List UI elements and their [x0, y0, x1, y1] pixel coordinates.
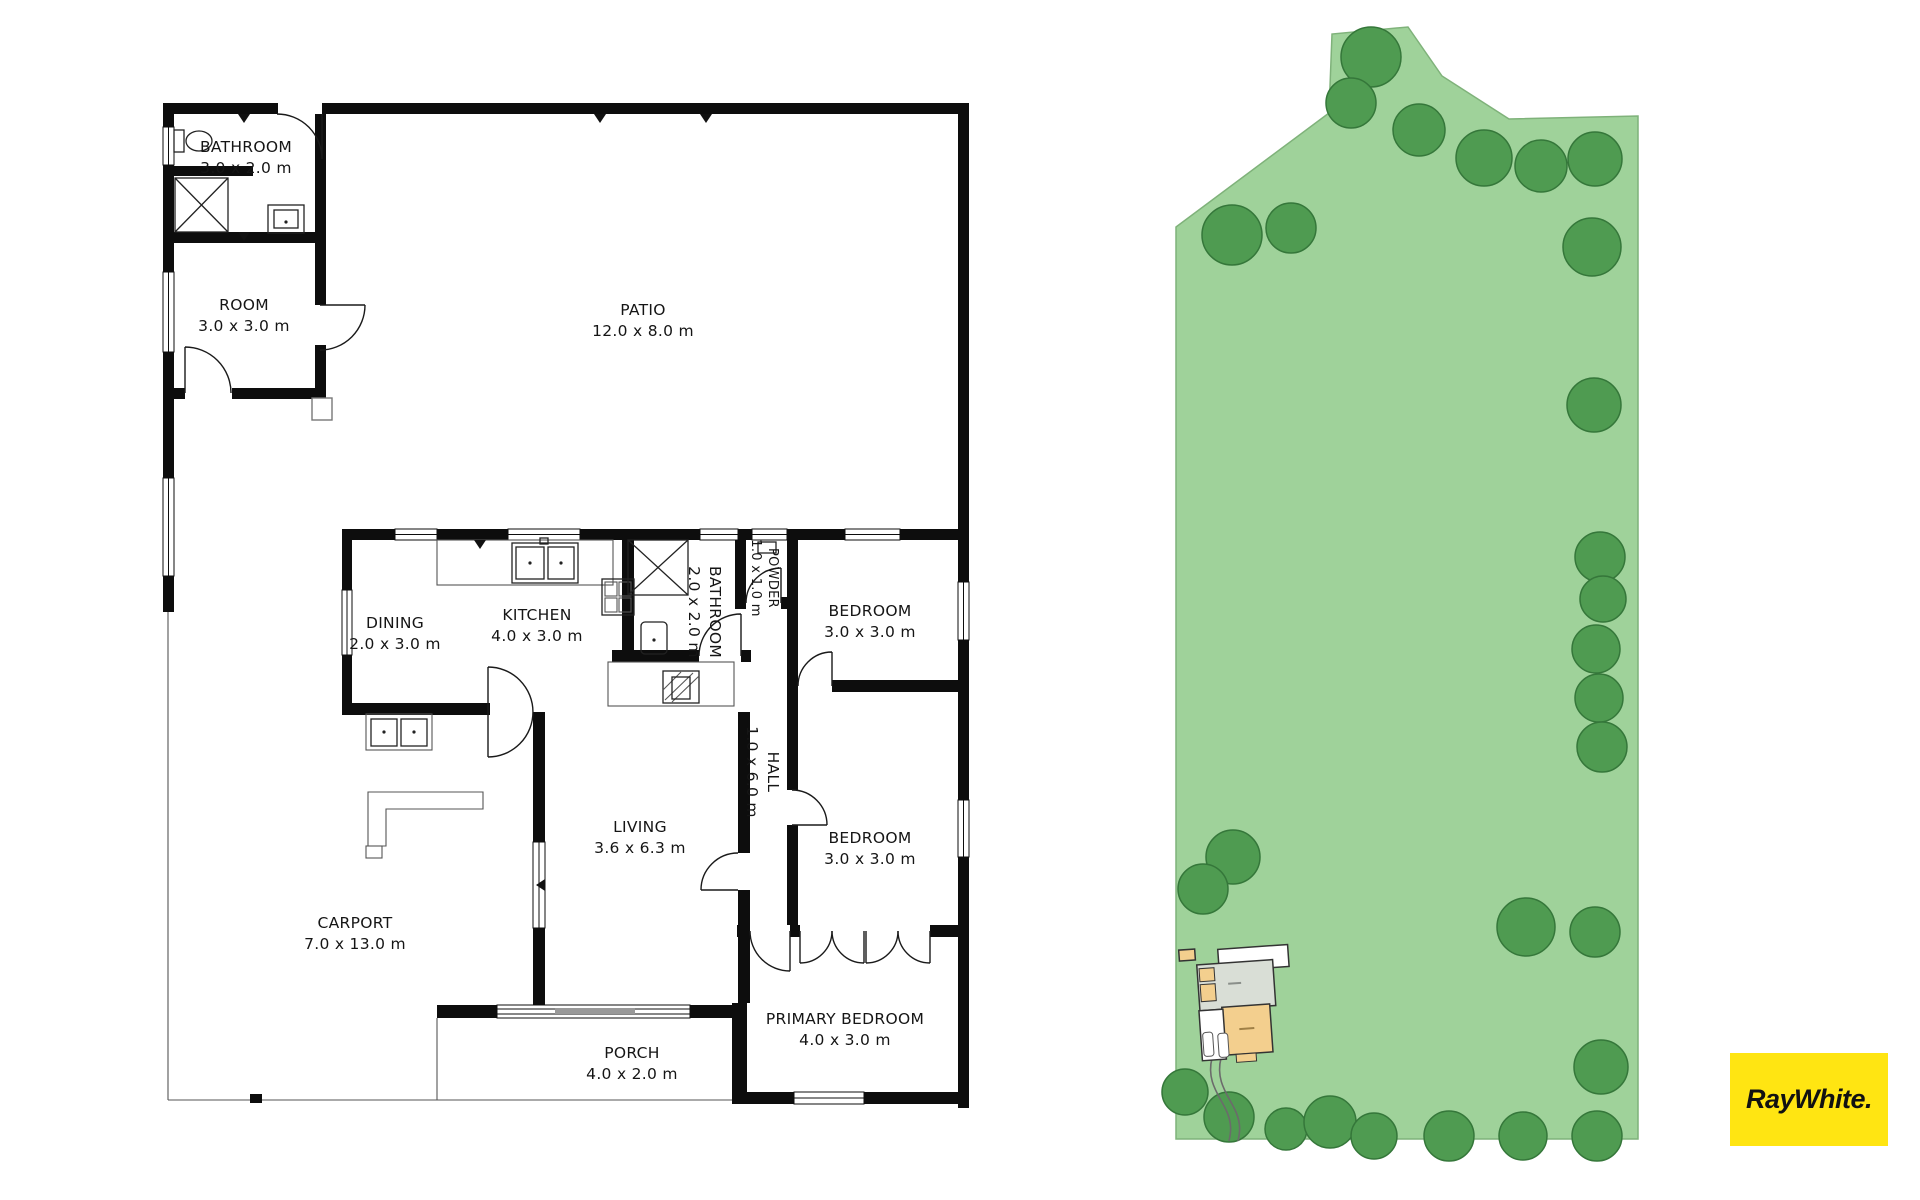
svg-text:2.0 x 3.0 m: 2.0 x 3.0 m	[349, 635, 441, 653]
svg-text:BATHROOM: BATHROOM	[706, 566, 724, 658]
room-label-porch: PORCH 4.0 x 2.0 m	[586, 1044, 678, 1083]
svg-text:PATIO: PATIO	[620, 301, 666, 319]
footprint-room-a	[1199, 968, 1215, 982]
shower2-icon	[628, 540, 688, 595]
svg-text:4.0 x 2.0 m: 4.0 x 2.0 m	[586, 1065, 678, 1083]
room-label-bedroom-1: BEDROOM 3.0 x 3.0 m	[824, 602, 916, 641]
svg-text:7.0 x 13.0 m: 7.0 x 13.0 m	[304, 935, 406, 953]
svg-text:1.0 x 6.0 m: 1.0 x 6.0 m	[743, 726, 761, 818]
room-label-bedroom-2: BEDROOM 3.0 x 3.0 m	[824, 829, 916, 868]
porch-boundary	[437, 1018, 732, 1100]
shower-icon	[175, 178, 228, 232]
raywhite-logo-text: RayWhite.	[1746, 1084, 1872, 1115]
room-label-primary-bedroom: PRIMARY BEDROOM 4.0 x 3.0 m	[766, 1010, 924, 1049]
svg-text:PRIMARY BEDROOM: PRIMARY BEDROOM	[766, 1010, 924, 1028]
room-label-powder: POWDER 1.0 x 1.0 m	[748, 539, 780, 616]
svg-text:CARPORT: CARPORT	[318, 914, 393, 932]
room-label-dining: DINING 2.0 x 3.0 m	[349, 614, 441, 653]
fixtures	[168, 114, 776, 1100]
kitchen-sink-icon	[512, 538, 578, 583]
svg-text:BEDROOM: BEDROOM	[828, 829, 911, 847]
svg-text:HALL: HALL	[764, 752, 782, 793]
svg-text:3.0 x 3.0 m: 3.0 x 3.0 m	[824, 623, 916, 641]
wall-ticks	[238, 114, 712, 891]
svg-text:POWDER: POWDER	[765, 548, 780, 608]
room-label-kitchen: KITCHEN 4.0 x 3.0 m	[491, 606, 583, 645]
room-label-living: LIVING 3.6 x 6.3 m	[594, 818, 686, 857]
svg-text:KITCHEN: KITCHEN	[502, 606, 571, 624]
svg-text:ROOM: ROOM	[219, 296, 269, 314]
svg-text:3.0 x 3.0 m: 3.0 x 3.0 m	[824, 850, 916, 868]
room-label-carport: CARPORT 7.0 x 13.0 m	[304, 914, 406, 953]
svg-text:DINING: DINING	[366, 614, 424, 632]
plan-canvas: BATHROOM 3.0 x 2.0 m ROOM 3.0 x 3.0 m PA…	[0, 0, 1920, 1200]
svg-text:3.6 x 6.3 m: 3.6 x 6.3 m	[594, 839, 686, 857]
svg-text:12.0 x 8.0 m: 12.0 x 8.0 m	[592, 322, 694, 340]
svg-text:BEDROOM: BEDROOM	[828, 602, 911, 620]
toilet2-icon	[641, 622, 667, 654]
laundry-tub-icon	[366, 714, 432, 750]
footprint-porch	[1236, 1053, 1257, 1062]
closet-doors	[800, 931, 930, 963]
svg-text:3.0 x 2.0 m: 3.0 x 2.0 m	[200, 159, 292, 177]
room-label-room: ROOM 3.0 x 3.0 m	[198, 296, 290, 335]
page: BATHROOM 3.0 x 2.0 m ROOM 3.0 x 3.0 m PA…	[0, 0, 1920, 1200]
svg-text:PORCH: PORCH	[604, 1044, 660, 1062]
room-labels: BATHROOM 3.0 x 2.0 m ROOM 3.0 x 3.0 m PA…	[198, 138, 924, 1083]
bench-icon	[366, 792, 483, 858]
footprint-room-b	[1200, 984, 1216, 1002]
carport-boundary	[168, 612, 437, 1100]
svg-text:LIVING: LIVING	[613, 818, 667, 836]
svg-text:3.0 x 3.0 m: 3.0 x 3.0 m	[198, 317, 290, 335]
patio-post	[312, 398, 332, 420]
room-label-bathroom-upper: BATHROOM 3.0 x 2.0 m	[200, 138, 292, 177]
svg-text:BATHROOM: BATHROOM	[200, 138, 292, 156]
floor-plan: BATHROOM 3.0 x 2.0 m ROOM 3.0 x 3.0 m PA…	[163, 103, 969, 1108]
room-label-hall: HALL 1.0 x 6.0 m	[743, 726, 782, 818]
svg-text:2.0 x 2.0 m: 2.0 x 2.0 m	[685, 566, 703, 658]
fridge-icon	[608, 662, 734, 706]
vanity-icon	[268, 205, 304, 233]
footprint-shed	[1179, 949, 1196, 961]
svg-text:1.0 x 1.0 m: 1.0 x 1.0 m	[748, 539, 763, 616]
room-label-bathroom: BATHROOM 2.0 x 2.0 m	[685, 566, 724, 658]
svg-text:4.0 x 3.0 m: 4.0 x 3.0 m	[799, 1031, 891, 1049]
room-label-patio: PATIO 12.0 x 8.0 m	[592, 301, 694, 340]
porch-railing	[497, 1005, 690, 1018]
site-plan	[1162, 27, 1638, 1161]
raywhite-logo: RayWhite.	[1730, 1053, 1888, 1146]
svg-text:4.0 x 3.0 m: 4.0 x 3.0 m	[491, 627, 583, 645]
